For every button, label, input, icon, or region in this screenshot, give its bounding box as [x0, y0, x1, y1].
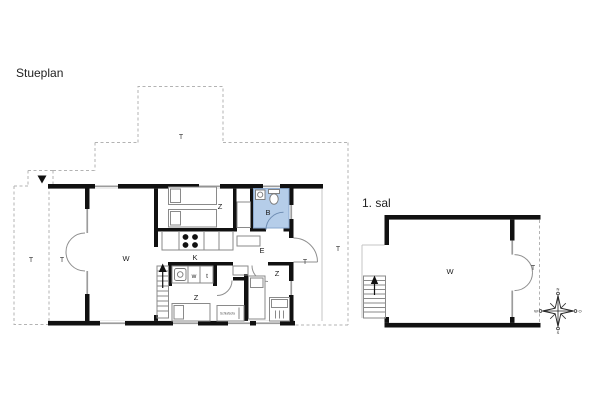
toilet-icon	[269, 190, 280, 205]
first-floor-title: 1. sal	[362, 196, 391, 210]
compass-east-label: O	[578, 309, 581, 314]
staircase-ground	[157, 264, 169, 319]
bedroom-bottom-left-furniture: Schlafsofa	[172, 304, 244, 322]
terrace-label-porch: T	[60, 257, 65, 264]
terrace-label-outer-left: T	[29, 257, 34, 264]
room-label-bedroom-top: Z	[218, 202, 223, 211]
utility-row: w t	[172, 266, 213, 283]
terrace-label-first: T	[531, 265, 536, 272]
first-floor-walls	[385, 215, 541, 328]
floor-plan-page: Stueplan	[0, 0, 600, 400]
stairs-up-arrow-icon	[159, 264, 167, 273]
bathroom	[254, 189, 290, 230]
compass-rose: N O S W	[534, 287, 581, 336]
floor-plan-drawing: Stueplan	[0, 0, 600, 400]
washing-machine-label: w	[191, 273, 197, 280]
terrace-label-right: T	[336, 246, 341, 253]
room-label-bedroom-bottom-left: Z	[194, 293, 199, 302]
room-label-living: W	[122, 254, 130, 263]
room-label-bedroom-bottom-right: Z	[275, 269, 280, 278]
first-floor-labels: W T	[446, 265, 535, 276]
first-floor-windows	[510, 241, 515, 317]
staircase-first	[362, 245, 386, 318]
sofa-bed-icon: Schlafsofa	[217, 306, 244, 322]
bed-icon	[169, 187, 217, 205]
dryer-label: t	[206, 273, 208, 280]
sideboard-icon	[237, 236, 260, 246]
kitchen-counter	[162, 232, 233, 251]
cot-icon	[270, 298, 290, 322]
bedroom-top-beds	[169, 187, 217, 227]
first-floor-plan: 1. sal W T	[362, 196, 541, 328]
room-label-bathroom: B	[265, 208, 270, 217]
terrace-label-top: T	[179, 134, 184, 141]
compass-south-label: S	[557, 330, 560, 335]
closet-icon	[233, 266, 248, 275]
wardrobe-icon	[237, 202, 251, 228]
room-label-kitchen: K	[192, 253, 197, 262]
first-floor-balcony-doors	[515, 220, 540, 323]
sofa-bed-label: Schlafsofa	[220, 312, 235, 316]
bedroom-bottom-right-furniture	[249, 276, 290, 321]
washbasin-icon	[175, 269, 187, 281]
room-label-entry: E	[259, 246, 264, 255]
room-label-living-first: W	[446, 267, 454, 276]
entrance-arrow-icon	[38, 176, 47, 184]
sink-icon	[256, 190, 266, 200]
ground-floor-title: Stueplan	[16, 66, 63, 80]
terrace-label-door: T	[303, 259, 308, 266]
compass-west-label: W	[534, 309, 538, 314]
stairs-up-arrow-icon	[371, 276, 378, 285]
compass-north-label: N	[557, 287, 560, 292]
bed-icon	[169, 210, 217, 228]
bed-icon	[172, 304, 210, 322]
ground-floor-plan: Stueplan	[14, 66, 348, 326]
terrace-outlines	[14, 87, 348, 326]
